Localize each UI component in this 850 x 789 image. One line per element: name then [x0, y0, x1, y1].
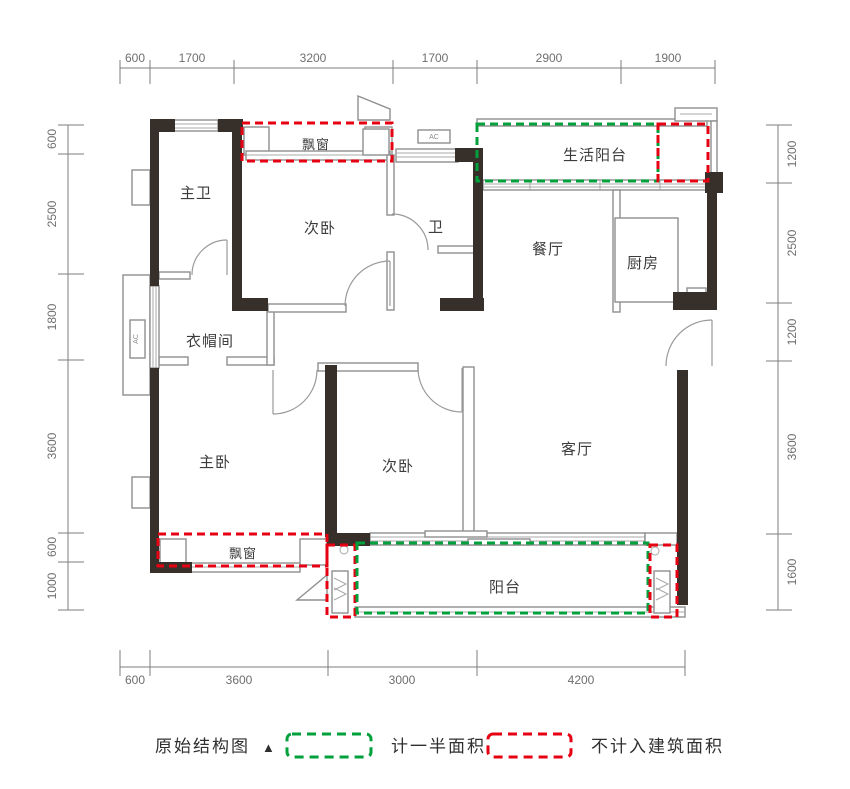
room-label-bedroom-top: 次卧 [304, 220, 336, 237]
legend: 原始结构图 ▲ 计一半面积 不计入建筑面积 [155, 734, 724, 757]
dim-left-1: 600 [45, 129, 59, 149]
door-master-bedroom [273, 370, 317, 414]
room-label-service-balcony: 生活阳台 [563, 147, 627, 164]
room-labels: 主卫 次卧 卫 餐厅 厨房 生活阳台 衣帽间 主卧 次卧 客厅 阳台 飘窗 飘窗 [180, 137, 659, 596]
room-label-bedroom-bottom: 次卧 [382, 458, 414, 475]
room-label-living: 客厅 [561, 441, 593, 458]
door-master-bath [192, 240, 227, 275]
floor-plan-page: 600 1700 3200 1700 2900 1900 600 2500 18… [0, 0, 850, 789]
dim-top-6: 1900 [655, 51, 682, 65]
door-bedroom-top [345, 261, 390, 306]
dim-right-1: 1200 [785, 140, 799, 167]
door-bedroom-bottom [418, 368, 462, 412]
ac-unit-entry-label: AC [429, 134, 439, 141]
dimension-chain-right: 1200 2500 1200 3600 1600 [766, 125, 799, 610]
room-label-bay-window-bottom: 飘窗 [229, 546, 257, 561]
room-label-dining: 餐厅 [532, 241, 564, 258]
dim-top-2: 1700 [179, 51, 206, 65]
dim-top-4: 1700 [422, 51, 449, 65]
legend-excluded-label: 不计入建筑面积 [591, 737, 724, 756]
dim-left-2: 2500 [45, 200, 59, 227]
dimension-chain-top: 600 1700 3200 1700 2900 1900 [120, 51, 715, 84]
dim-left-5: 600 [45, 537, 59, 557]
ac-unit-left-label: AC [133, 334, 140, 344]
dim-top-5: 2900 [536, 51, 563, 65]
legend-original-label: 原始结构图 [155, 737, 250, 756]
room-label-master-bath: 主卫 [180, 185, 212, 202]
dim-right-2: 2500 [785, 229, 799, 256]
overlay-balcony [357, 543, 648, 613]
door-bath [392, 214, 428, 250]
room-label-bath: 卫 [428, 219, 444, 236]
dim-right-4: 3600 [785, 433, 799, 460]
dim-top-3: 3200 [300, 51, 327, 65]
room-label-cloakroom: 衣帽间 [186, 333, 234, 350]
room-label-kitchen: 厨房 [627, 255, 659, 272]
dim-top-1: 600 [125, 51, 145, 65]
dim-right-5: 1600 [785, 558, 799, 585]
overlay-excluded-top-right [658, 124, 708, 181]
dim-left-3: 1800 [45, 303, 59, 330]
dim-bottom-1: 600 [125, 673, 145, 687]
dimension-chain-bottom: 600 3600 3000 4200 [120, 650, 685, 687]
dim-bottom-3: 3000 [389, 673, 416, 687]
door-entry [666, 320, 712, 366]
dimension-chain-left: 600 2500 1800 3600 600 1000 [45, 125, 84, 610]
legend-half-area-label: 计一半面积 [391, 737, 486, 756]
room-label-master-bedroom: 主卧 [199, 454, 231, 471]
legend-half-area-swatch [287, 734, 371, 757]
room-label-balcony: 阳台 [489, 579, 521, 596]
dim-bottom-4: 4200 [568, 673, 595, 687]
dim-right-3: 1200 [785, 318, 799, 345]
legend-excluded-swatch [488, 734, 571, 757]
room-label-bay-window-top: 飘窗 [302, 137, 330, 152]
legend-triangle-icon: ▲ [262, 740, 275, 755]
floor-plan-canvas: 600 1700 3200 1700 2900 1900 600 2500 18… [0, 0, 850, 789]
dim-left-4: 3600 [45, 432, 59, 459]
dim-left-6: 1000 [45, 572, 59, 599]
dim-bottom-2: 3600 [226, 673, 253, 687]
thin-walls: AC [123, 96, 717, 617]
